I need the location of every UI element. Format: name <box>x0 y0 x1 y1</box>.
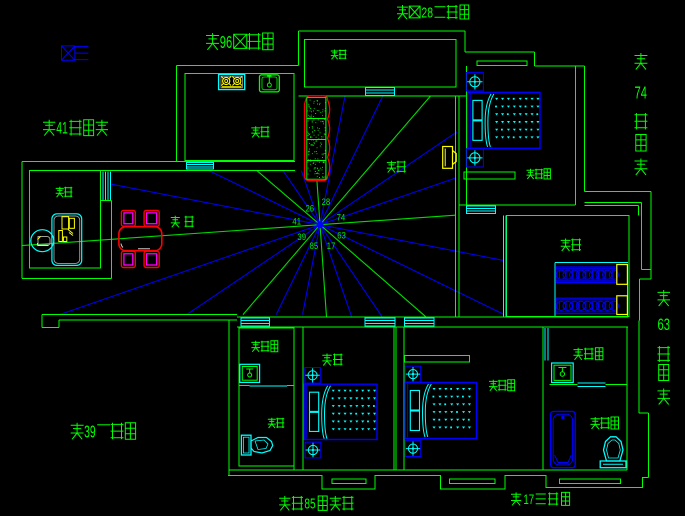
svg-text:41: 41 <box>56 119 68 138</box>
svg-text:26: 26 <box>306 204 315 215</box>
svg-text:85: 85 <box>304 496 315 513</box>
svg-text:63: 63 <box>337 230 346 241</box>
svg-text:28: 28 <box>421 5 433 21</box>
svg-text:63: 63 <box>658 315 670 334</box>
svg-text:39: 39 <box>84 421 96 441</box>
svg-text:39: 39 <box>297 232 306 243</box>
svg-text:85: 85 <box>310 241 319 252</box>
svg-text:41: 41 <box>292 216 301 227</box>
svg-text:17: 17 <box>327 241 336 252</box>
svg-text:17: 17 <box>523 492 534 507</box>
svg-text:96: 96 <box>220 32 233 52</box>
svg-text:74: 74 <box>635 83 648 103</box>
svg-text:28: 28 <box>322 197 331 208</box>
svg-text:74: 74 <box>337 212 346 223</box>
